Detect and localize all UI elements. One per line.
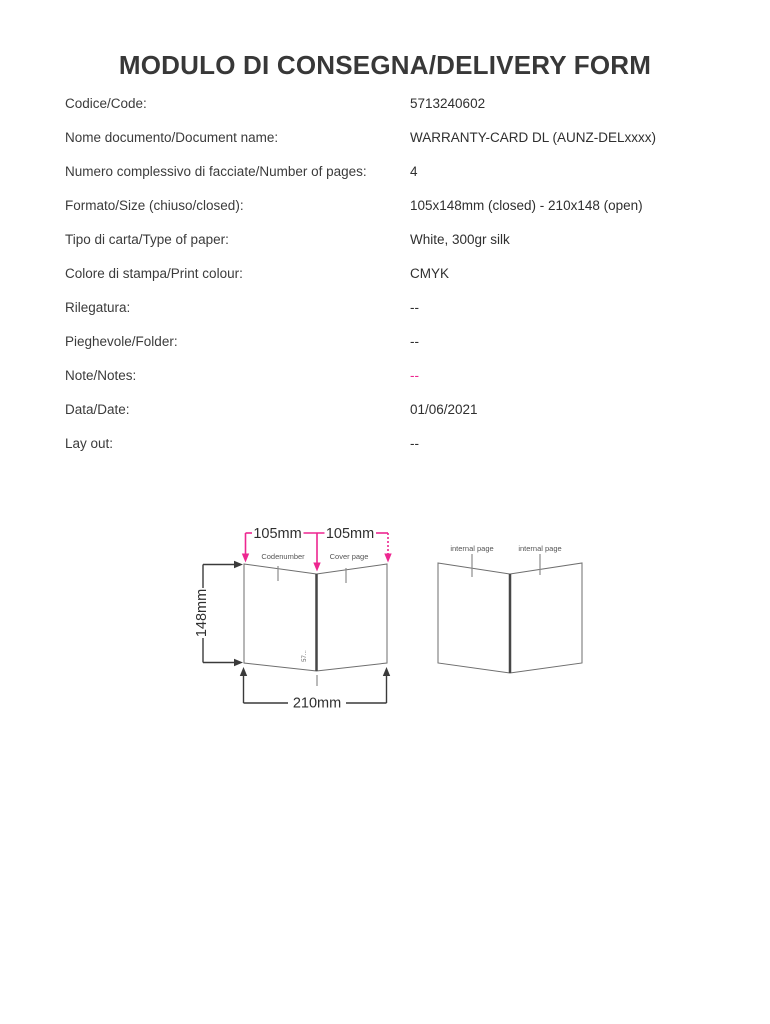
form-row-folder: Pieghevole/Folder: -- [65, 324, 725, 358]
internal-page-left-label: internal page [450, 544, 493, 553]
dim-210mm-label: 210mm [293, 696, 341, 712]
row-label: Tipo di carta/Type of paper: [65, 232, 410, 247]
internal-page-right-label: internal page [518, 544, 561, 553]
form-row-notes: Note/Notes: -- [65, 358, 725, 392]
delivery-form-page: MODULO DI CONSEGNA/DELIVERY FORM Codice/… [0, 0, 770, 1024]
row-label: Formato/Size (chiuso/closed): [65, 198, 410, 213]
dim-105mm-left-label: 105mm [253, 526, 301, 542]
form-row-layout: Lay out: -- [65, 426, 725, 460]
row-label: Numero complessivo di facciate/Number of… [65, 164, 410, 179]
pink-arrow-center-head [313, 563, 320, 572]
row-value: 105x148mm (closed) - 210x148 (open) [410, 198, 725, 213]
row-value: -- [410, 436, 725, 451]
form-row-size: Formato/Size (chiuso/closed): 105x148mm … [65, 188, 725, 222]
row-label: Rilegatura: [65, 300, 410, 315]
coverpage-panel-label: Cover page [330, 552, 369, 561]
row-label: Data/Date: [65, 402, 410, 417]
dim-148mm-label: 148mm [194, 589, 210, 637]
height-arrow-top-head [234, 561, 243, 568]
codenumber-panel-label: Codenumber [261, 552, 305, 561]
row-label: Codice/Code: [65, 96, 410, 111]
form-row-paper-type: Tipo di carta/Type of paper: White, 300g… [65, 222, 725, 256]
height-arrow-bottom-head [234, 659, 243, 666]
row-value: -- [410, 300, 725, 315]
row-label: Note/Notes: [65, 368, 410, 383]
row-label: Lay out: [65, 436, 410, 451]
row-value: 4 [410, 164, 725, 179]
width-arrow-right-head [383, 667, 390, 676]
form-row-date: Data/Date: 01/06/2021 [65, 392, 725, 426]
pink-arrow-right-head [384, 554, 391, 563]
card-inside-diagram: internal page internal page [438, 544, 582, 673]
form-row-document-name: Nome documento/Document name: WARRANTY-C… [65, 120, 725, 154]
spine-note-text: 57... [302, 650, 308, 662]
row-value: White, 300gr silk [410, 232, 725, 247]
form-row-print-colour: Colore di stampa/Print colour: CMYK [65, 256, 725, 290]
row-value: 5713240602 [410, 96, 725, 111]
row-label: Nome documento/Document name: [65, 130, 410, 145]
dim-105mm-right-label: 105mm [326, 526, 374, 542]
form-row-number-of-pages: Numero complessivo di facciate/Number of… [65, 154, 725, 188]
page-title: MODULO DI CONSEGNA/DELIVERY FORM [0, 50, 770, 81]
row-label: Colore di stampa/Print colour: [65, 266, 410, 281]
form-row-rilegatura: Rilegatura: -- [65, 290, 725, 324]
row-value: WARRANTY-CARD DL (AUNZ-DELxxxx) [410, 130, 725, 145]
row-value: CMYK [410, 266, 725, 281]
folded-card-diagram: Codenumber Cover page 57... 105mm 105mm [180, 515, 630, 725]
pink-arrow-left-head [242, 554, 249, 563]
row-label: Pieghevole/Folder: [65, 334, 410, 349]
form-rows: Codice/Code: 5713240602 Nome documento/D… [65, 86, 725, 460]
card-outside-diagram: Codenumber Cover page 57... [244, 552, 387, 686]
row-value-notes: -- [410, 368, 725, 383]
row-value: -- [410, 334, 725, 349]
form-row-codice: Codice/Code: 5713240602 [65, 86, 725, 120]
width-arrow-left-head [240, 667, 247, 676]
row-value: 01/06/2021 [410, 402, 725, 417]
